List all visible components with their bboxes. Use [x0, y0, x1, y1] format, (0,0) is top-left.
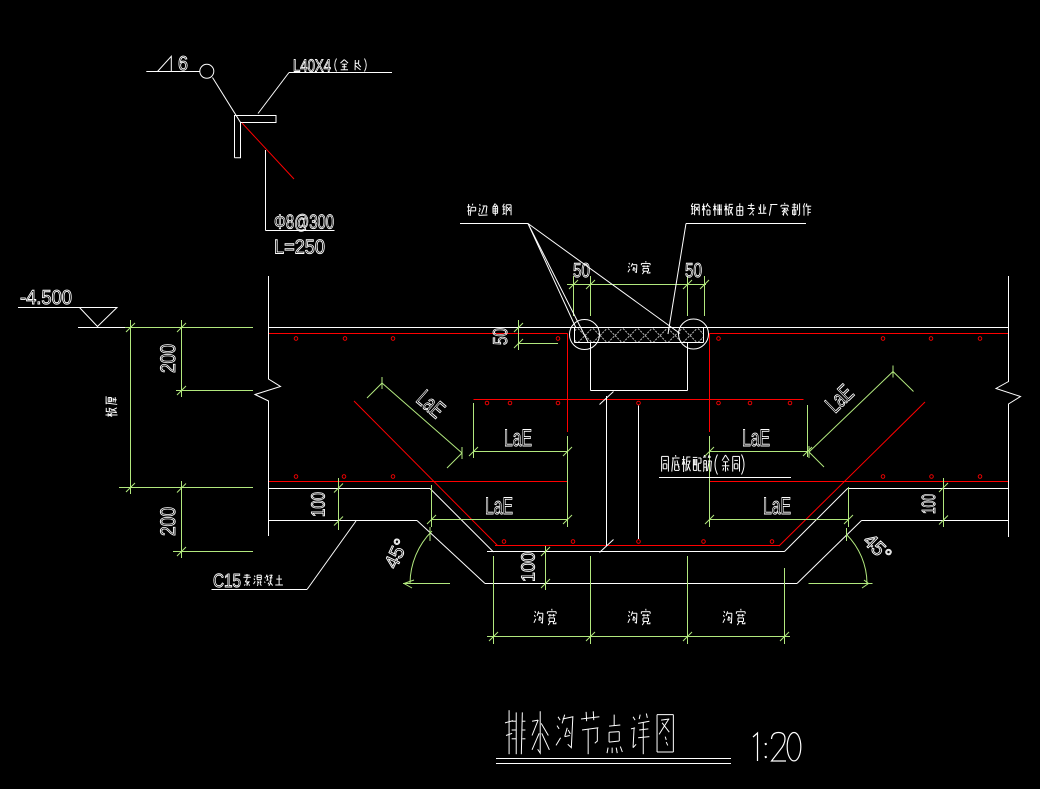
svg-text:L=250: L=250: [274, 237, 325, 259]
svg-text:50: 50: [573, 260, 590, 282]
svg-text:LaE: LaE: [504, 425, 532, 452]
svg-text:LaE: LaE: [485, 493, 513, 520]
svg-text:LaE: LaE: [820, 379, 859, 418]
svg-text:LaE: LaE: [763, 493, 791, 520]
svg-text:45°: 45°: [381, 536, 414, 572]
svg-text:-4.500: -4.500: [20, 287, 72, 309]
svg-text:6: 6: [178, 53, 188, 75]
svg-text:LaE: LaE: [411, 385, 450, 424]
svg-text:100: 100: [309, 492, 330, 517]
svg-text:50: 50: [490, 328, 512, 345]
svg-text:50: 50: [685, 260, 702, 282]
svg-text:C15: C15: [213, 571, 241, 592]
svg-text:200: 200: [157, 507, 180, 536]
svg-text:LaE: LaE: [742, 425, 770, 452]
svg-text:100: 100: [519, 552, 540, 582]
svg-text:200: 200: [157, 344, 180, 373]
svg-text:100: 100: [919, 494, 940, 514]
svg-text:45°: 45°: [859, 530, 896, 567]
